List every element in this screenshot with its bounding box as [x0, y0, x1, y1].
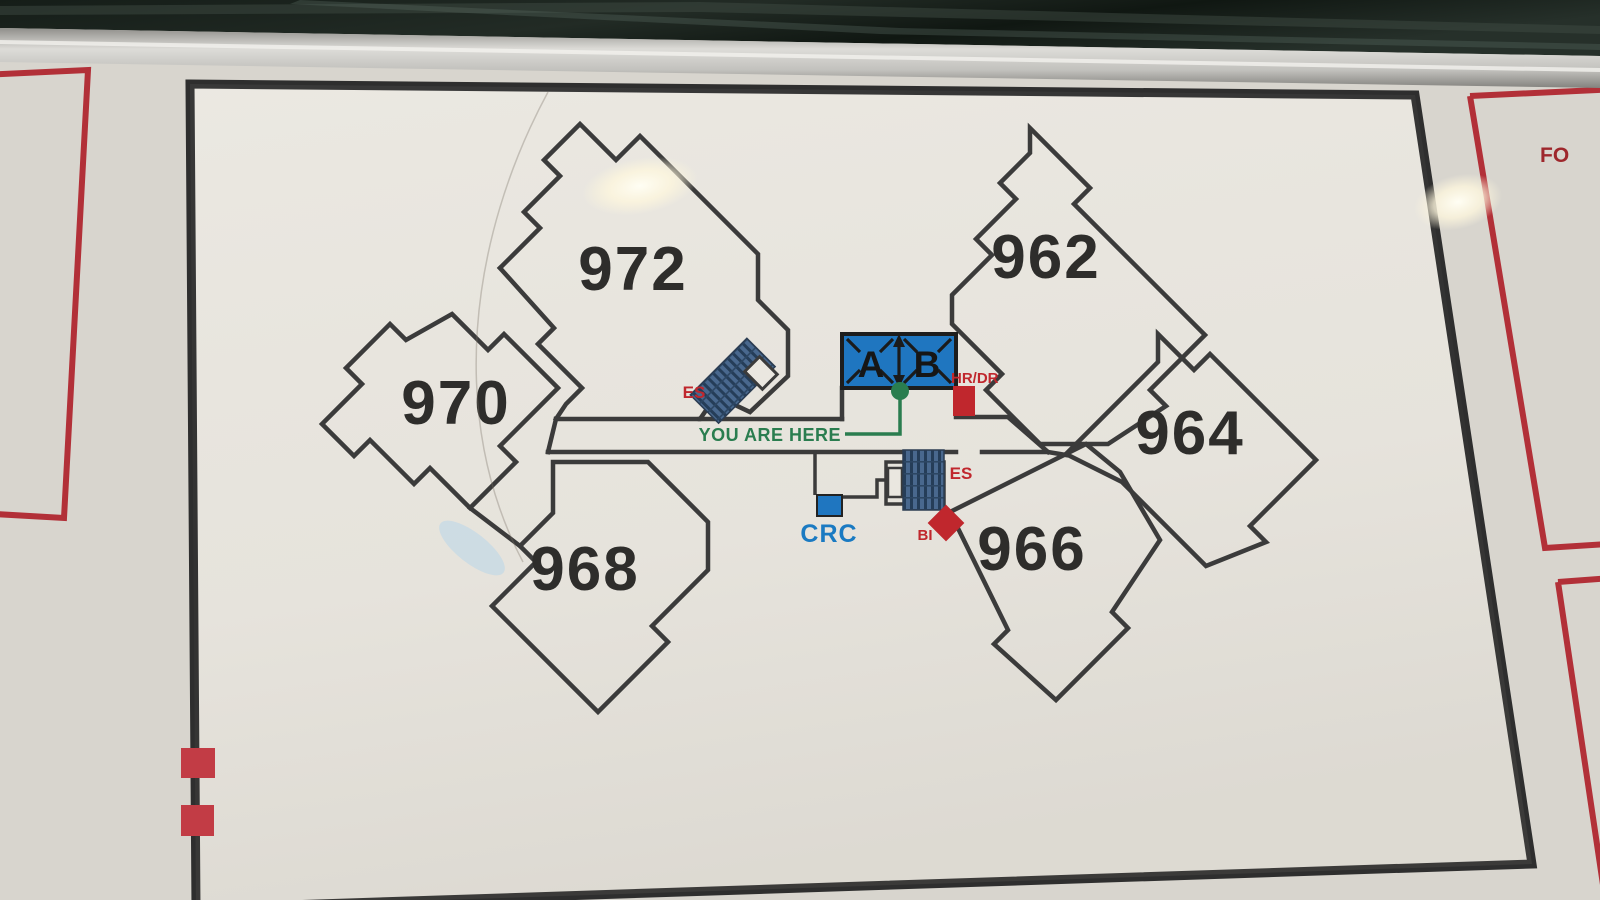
elevator-car-b-label: B — [914, 344, 941, 385]
right-panel-text-fragment: FO — [1540, 144, 1569, 167]
bi-label: BI — [918, 527, 933, 544]
you-are-here-label: YOU ARE HERE — [699, 425, 841, 445]
legend-square-1 — [181, 748, 215, 778]
crc-marker — [817, 495, 842, 516]
building-966-label: 966 — [977, 515, 1086, 584]
directory-map-photo: FO ES ES A B YOU ARE HERE H — [0, 0, 1600, 900]
elevator-car-a-label: A — [858, 344, 885, 385]
building-970-label: 970 — [401, 369, 510, 438]
hr-dr-marker — [953, 386, 975, 416]
building-968-label: 968 — [530, 535, 639, 604]
elevator-block: A B — [842, 334, 956, 388]
building-972-label: 972 — [578, 235, 687, 304]
hr-dr-label: HR/DR — [951, 370, 999, 387]
you-are-here-dot-icon — [891, 382, 909, 400]
map-panel-shading — [190, 84, 1532, 900]
crc-label: CRC — [800, 520, 857, 548]
building-964-label: 964 — [1135, 399, 1244, 468]
legend-square-2 — [181, 805, 214, 836]
es-lower-label: ES — [950, 464, 973, 483]
building-962-label: 962 — [991, 223, 1100, 292]
lower-stairs-landing — [888, 468, 902, 497]
site-map-svg: FO ES ES A B YOU ARE HERE H — [0, 0, 1600, 900]
lower-stairs-hatch — [903, 450, 944, 510]
es-upper-label: ES — [683, 383, 706, 402]
